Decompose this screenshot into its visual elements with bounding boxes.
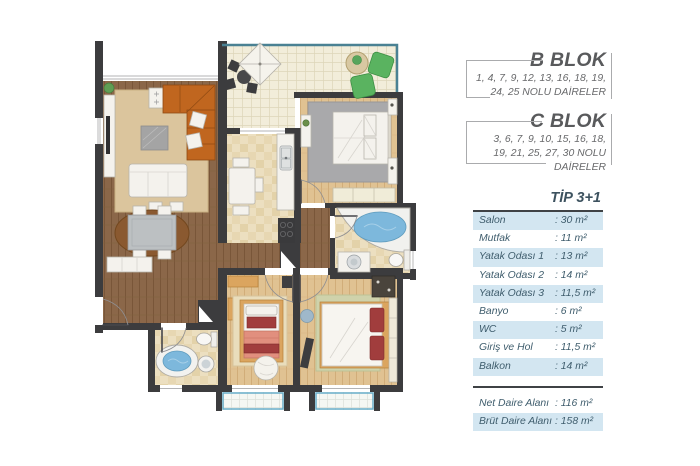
nightstand [388, 99, 397, 115]
row-label: Yatak Odası 1 [479, 248, 555, 266]
dresser [228, 276, 258, 287]
dining-chair [158, 249, 171, 259]
double-bed [333, 112, 391, 164]
dining-chair [133, 206, 146, 216]
totals-divider [473, 386, 603, 388]
balcony-a-floor [222, 392, 284, 410]
floorplan-brochure: B BLOK 1, 4, 7, 9, 12, 13, 16, 18, 19, 2… [0, 0, 700, 466]
units-line: 1, 4, 7, 9, 12, 13, 16, 18, 19, [466, 72, 606, 86]
block-c-info: C BLOK 3, 6, 7, 9, 10, 15, 16, 18, 19, 2… [466, 110, 606, 174]
row-label: Yatak Odası 2 [479, 267, 555, 285]
table-row: Brüt Daire Alanı : 158 m² [473, 413, 603, 431]
table-row: Yatak Odası 1 : 13 m² [473, 248, 603, 266]
bracket-line [466, 60, 542, 61]
kitchen-sink [280, 146, 292, 170]
bistro-chair [246, 82, 258, 94]
row-label: Giriş ve Hol [479, 339, 555, 357]
duct-shaft [280, 243, 300, 269]
kitchen-chair [255, 178, 263, 192]
kitchen-chair [233, 206, 249, 215]
row-label: Banyo [479, 303, 555, 321]
kitchen-table [229, 168, 255, 204]
block-units: 1, 4, 7, 9, 12, 13, 16, 18, 19, 24, 25 N… [466, 72, 606, 100]
area-rows: Salon : 30 m² Mutfak : 11 m² Yatak Odası… [473, 212, 603, 376]
double-bed [320, 302, 390, 368]
sofa [129, 164, 187, 197]
block-b-info: B BLOK 1, 4, 7, 9, 12, 13, 16, 18, 19, 2… [466, 49, 606, 100]
row-label: Yatak Odası 3 [479, 285, 555, 303]
stove [278, 218, 295, 243]
row-value: : 11,5 m² [555, 285, 603, 303]
row-value: : 5 m² [555, 321, 603, 339]
bean-bag-white [254, 356, 278, 380]
plant [353, 56, 362, 65]
row-value: : 116 m² [555, 395, 603, 413]
units-line: 3, 6, 7, 9, 10, 15, 16, 18, [466, 133, 606, 147]
bench-cabinet [333, 188, 395, 202]
table-row: Yatak Odası 3 : 11,5 m² [473, 285, 603, 303]
table-title: TİP 3+1 [473, 189, 603, 207]
corridor-arm-floor [301, 208, 330, 243]
bean-bag [350, 73, 376, 99]
stool [301, 310, 314, 323]
table-row: Salon : 30 m² [473, 212, 603, 230]
dark-dresser [372, 276, 395, 297]
row-label: WC [479, 321, 555, 339]
round-sink [198, 356, 214, 372]
row-value: : 158 m² [555, 413, 603, 431]
bracket-line [466, 121, 467, 164]
coffee-table [141, 126, 168, 150]
bracket-line [466, 60, 467, 98]
totals-rows: Net Daire Alanı : 116 m² Brüt Daire Alan… [473, 395, 603, 431]
row-label: Brüt Daire Alanı [479, 413, 555, 431]
table-row: Yatak Odası 2 : 14 m² [473, 267, 603, 285]
table-row: Balkon : 14 m² [473, 358, 603, 376]
type-table: TİP 3+1 Salon : 30 m² Mutfak : 11 m² Yat… [473, 189, 603, 431]
wardrobe [389, 298, 397, 382]
row-label: Mutfak [479, 230, 555, 248]
dining-table [128, 215, 176, 250]
duct-shaft [198, 300, 218, 323]
ottoman [170, 202, 183, 211]
row-value: : 14 m² [555, 267, 603, 285]
kitchen-counter [277, 134, 294, 210]
row-value: : 30 m² [555, 212, 603, 230]
floor-plan [0, 0, 465, 466]
row-value: : 11,5 m² [555, 339, 603, 357]
bracket-line [466, 163, 546, 164]
units-line: 19, 21, 25, 27, 30 NOLU [466, 147, 606, 161]
bracket-line [466, 97, 490, 98]
nightstand [388, 158, 397, 184]
bracket-line [611, 114, 612, 165]
bracket-line [466, 121, 542, 122]
single-bed [240, 300, 283, 362]
kitchen-chair [233, 158, 249, 167]
row-label: Balkon [479, 358, 555, 376]
bathroom-sink [338, 252, 370, 272]
table-row: Net Daire Alanı : 116 m² [473, 395, 603, 413]
table-row: Mutfak : 11 m² [473, 230, 603, 248]
row-label: Salon [479, 212, 555, 230]
sideboard [107, 257, 152, 272]
plant [104, 83, 114, 93]
tv [106, 116, 110, 154]
row-value: : 6 m² [555, 303, 603, 321]
info-panel: B BLOK 1, 4, 7, 9, 12, 13, 16, 18, 19, 2… [460, 0, 620, 466]
row-label: Net Daire Alanı [479, 395, 555, 413]
table-row: Giriş ve Hol : 11,5 m² [473, 339, 603, 357]
table-row: Banyo : 6 m² [473, 303, 603, 321]
table-row: WC : 5 m² [473, 321, 603, 339]
bracket-line [611, 53, 612, 99]
balcony-b-floor [315, 392, 374, 410]
row-value: : 11 m² [555, 230, 603, 248]
block-units: 3, 6, 7, 9, 10, 15, 16, 18, 19, 21, 25, … [466, 133, 606, 174]
nightstand [282, 276, 292, 288]
dining-chair [158, 206, 171, 216]
row-value: : 13 m² [555, 248, 603, 266]
plant [303, 120, 309, 126]
row-value: : 14 m² [555, 358, 603, 376]
